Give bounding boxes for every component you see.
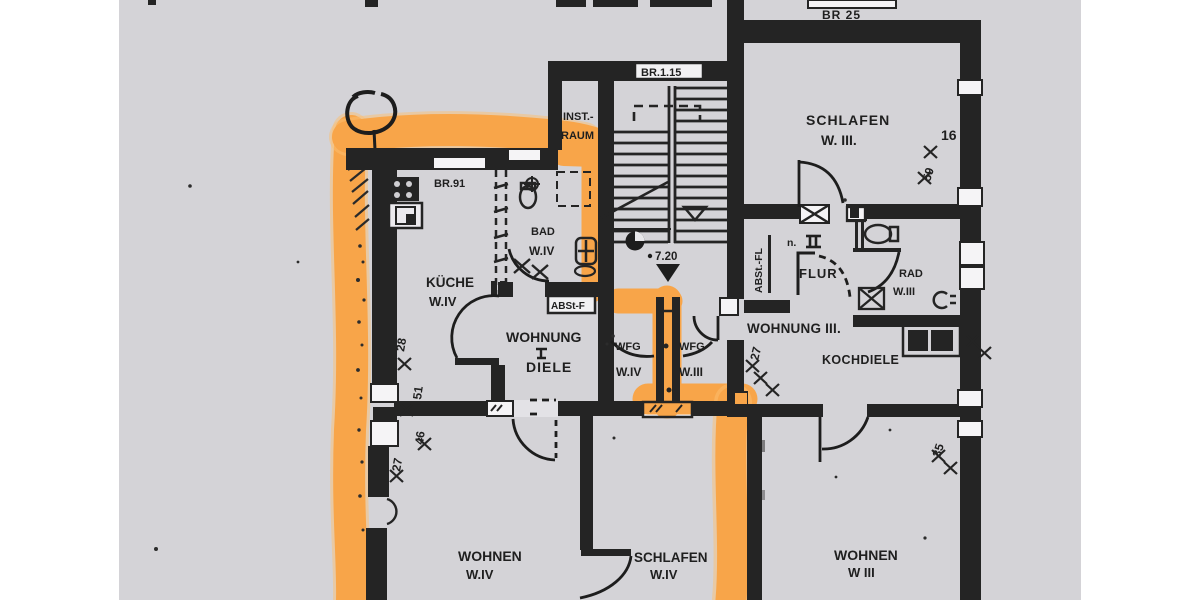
svg-text:BAD: BAD: [531, 226, 555, 238]
svg-text:FLUR: FLUR: [799, 266, 838, 281]
svg-text:W.IV: W.IV: [466, 567, 494, 582]
svg-text:W.IV: W.IV: [529, 244, 554, 258]
svg-text:SCHLAFEN: SCHLAFEN: [634, 550, 708, 565]
svg-text:WOHNUNG III.: WOHNUNG III.: [747, 321, 841, 336]
svg-text:SCHLAFEN: SCHLAFEN: [806, 112, 890, 128]
svg-text:16: 16: [941, 127, 957, 143]
svg-text:WFG: WFG: [679, 341, 705, 353]
svg-text:28: 28: [393, 337, 409, 353]
svg-text:KOCHDIELE: KOCHDIELE: [822, 353, 899, 367]
svg-text:RAUM: RAUM: [561, 130, 594, 142]
svg-text:KÜCHE: KÜCHE: [426, 275, 474, 290]
svg-text:WOHNEN: WOHNEN: [834, 547, 898, 563]
svg-text:W.III: W.III: [893, 286, 915, 298]
svg-text:RAD: RAD: [899, 268, 923, 280]
svg-text:BR.91: BR.91: [434, 178, 465, 190]
svg-text:INST.-: INST.-: [563, 111, 594, 123]
svg-text:n.: n.: [787, 237, 796, 249]
svg-text:7.20: 7.20: [655, 251, 677, 263]
svg-text:W III: W III: [848, 565, 875, 580]
svg-text:ABSt-F: ABSt-F: [551, 301, 585, 312]
svg-text:W.IV: W.IV: [616, 365, 641, 379]
svg-text:W.IV: W.IV: [650, 567, 678, 582]
svg-text:BR.1.15: BR.1.15: [641, 67, 681, 79]
svg-text:W.IV: W.IV: [429, 294, 457, 309]
svg-text:BR 25: BR 25: [822, 8, 861, 22]
svg-text:W.III: W.III: [679, 365, 703, 379]
svg-text:ABSt.-FL: ABSt.-FL: [753, 248, 765, 293]
svg-text:WOHNUNG: WOHNUNG: [506, 329, 582, 345]
svg-text:W. III.: W. III.: [821, 132, 857, 148]
svg-text:DIELE: DIELE: [526, 359, 572, 375]
svg-text:WOHNEN: WOHNEN: [458, 548, 522, 564]
svg-text:51: 51: [410, 385, 426, 400]
